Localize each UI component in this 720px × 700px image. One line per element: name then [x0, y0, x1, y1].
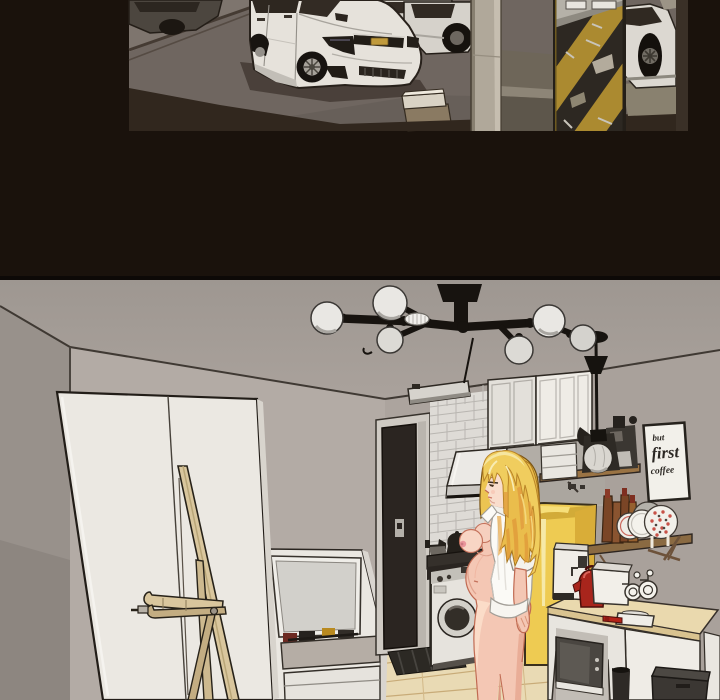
svg-text:first: first [651, 442, 680, 463]
svg-text:coffee: coffee [650, 465, 675, 477]
svg-text:but: but [652, 432, 665, 443]
